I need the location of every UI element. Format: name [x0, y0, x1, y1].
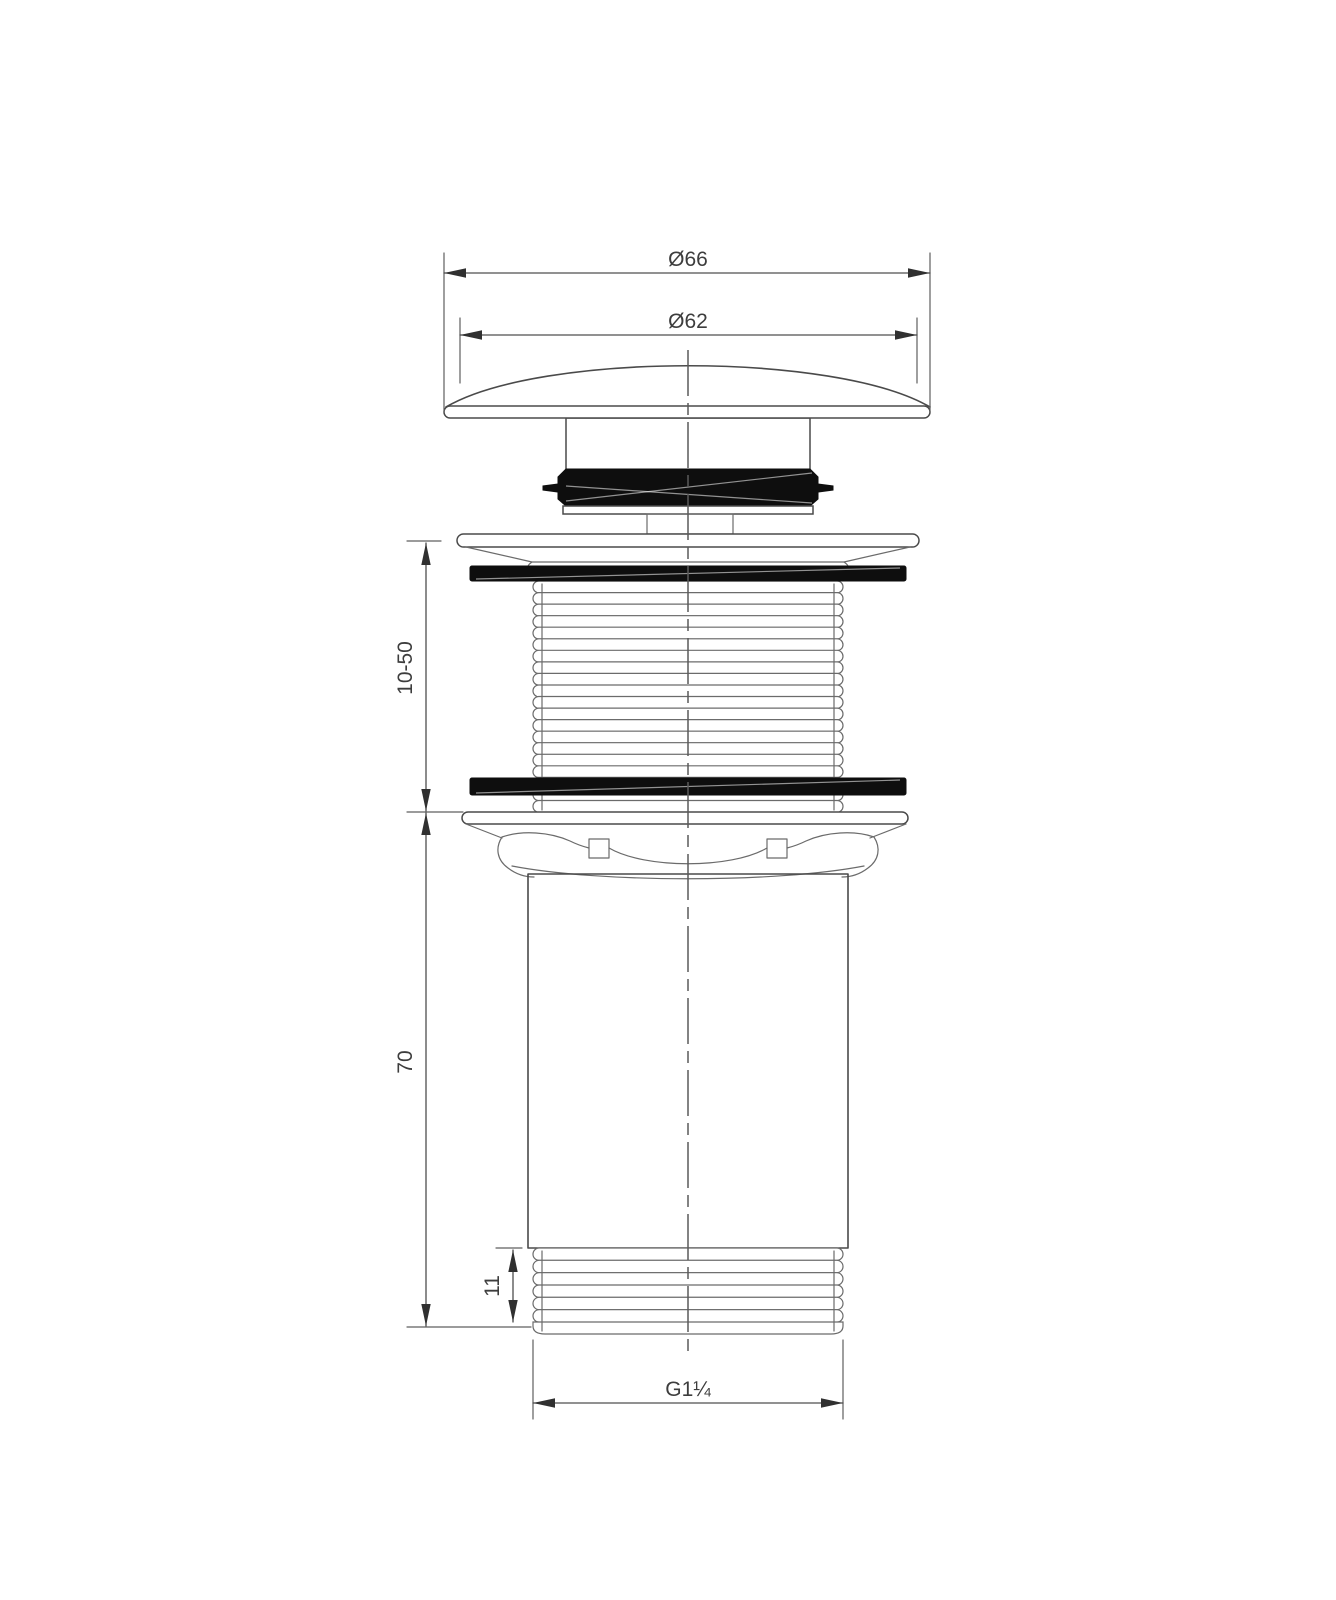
technical-drawing-page: Ø66 Ø62 10-50 70 11: [0, 0, 1336, 1600]
cap-rim: [444, 406, 930, 418]
arrowhead: [444, 268, 466, 277]
arrowhead: [508, 1300, 517, 1322]
arrowhead: [460, 330, 482, 339]
arrowhead: [421, 789, 430, 811]
arrowhead: [421, 543, 430, 565]
locknut-tab-left: [589, 839, 609, 858]
dim-label-thread-size: G1¼: [665, 1378, 711, 1401]
dim-label-cap-top-diameter: Ø62: [668, 310, 708, 333]
locknut-tab-right: [767, 839, 787, 858]
locknut-flange: [462, 812, 908, 824]
dim-label-body-length: 70: [394, 1050, 417, 1073]
gasket-tab-right: [818, 484, 833, 492]
basin-waste-drawing: Ø66 Ø62 10-50 70 11: [0, 0, 1336, 1600]
dim-label-bottom-thread-length: 11: [481, 1275, 504, 1297]
inner-stem: [647, 514, 733, 534]
dim-thread-size: G1¼: [533, 1340, 843, 1419]
locknut: [462, 812, 908, 879]
pop-up-cap: [444, 366, 930, 418]
arrowhead: [895, 330, 917, 339]
dim-bottom-thread-length: 11: [481, 1248, 522, 1322]
dim-clamping-range: 10-50: [394, 541, 463, 812]
arrowhead: [421, 813, 430, 835]
arrowhead: [421, 1304, 430, 1326]
gasket-tab-left: [543, 484, 558, 492]
dim-label-cap-outer-diameter: Ø66: [668, 248, 708, 271]
dim-label-clamping-range: 10-50: [394, 641, 417, 695]
arrowhead: [908, 268, 930, 277]
dim-body-length: 70: [394, 813, 531, 1327]
arrowhead: [821, 1398, 843, 1407]
arrowhead: [533, 1398, 555, 1407]
arrowhead: [508, 1250, 517, 1272]
